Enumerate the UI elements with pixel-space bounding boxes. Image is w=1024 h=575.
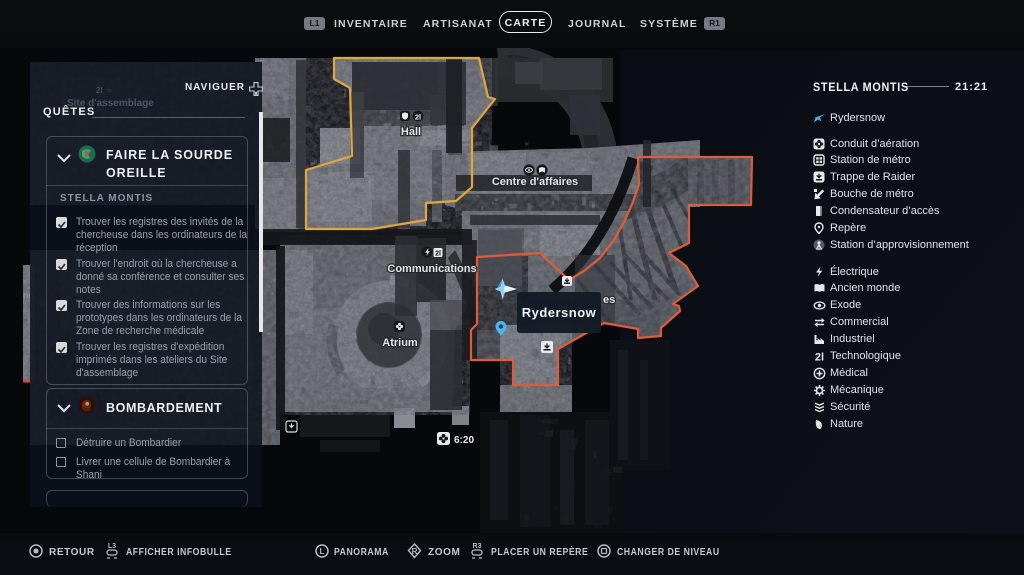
svg-text:6:20: 6:20 <box>454 435 474 446</box>
svg-text:R3: R3 <box>473 543 482 550</box>
svg-text:Atrium: Atrium <box>382 337 418 349</box>
svg-text:Rydersnow: Rydersnow <box>522 305 597 320</box>
svg-text:es: es <box>603 294 615 306</box>
svg-text:R: R <box>412 547 418 556</box>
svg-text:2l: 2l <box>415 113 421 122</box>
svg-text:Centre d'affaires: Centre d'affaires <box>492 176 578 188</box>
svg-text:L: L <box>320 547 325 556</box>
svg-text:L3: L3 <box>108 543 116 550</box>
svg-text:Communications: Communications <box>387 263 476 275</box>
svg-text:Hall: Hall <box>401 126 421 138</box>
svg-text:2l: 2l <box>435 250 441 257</box>
